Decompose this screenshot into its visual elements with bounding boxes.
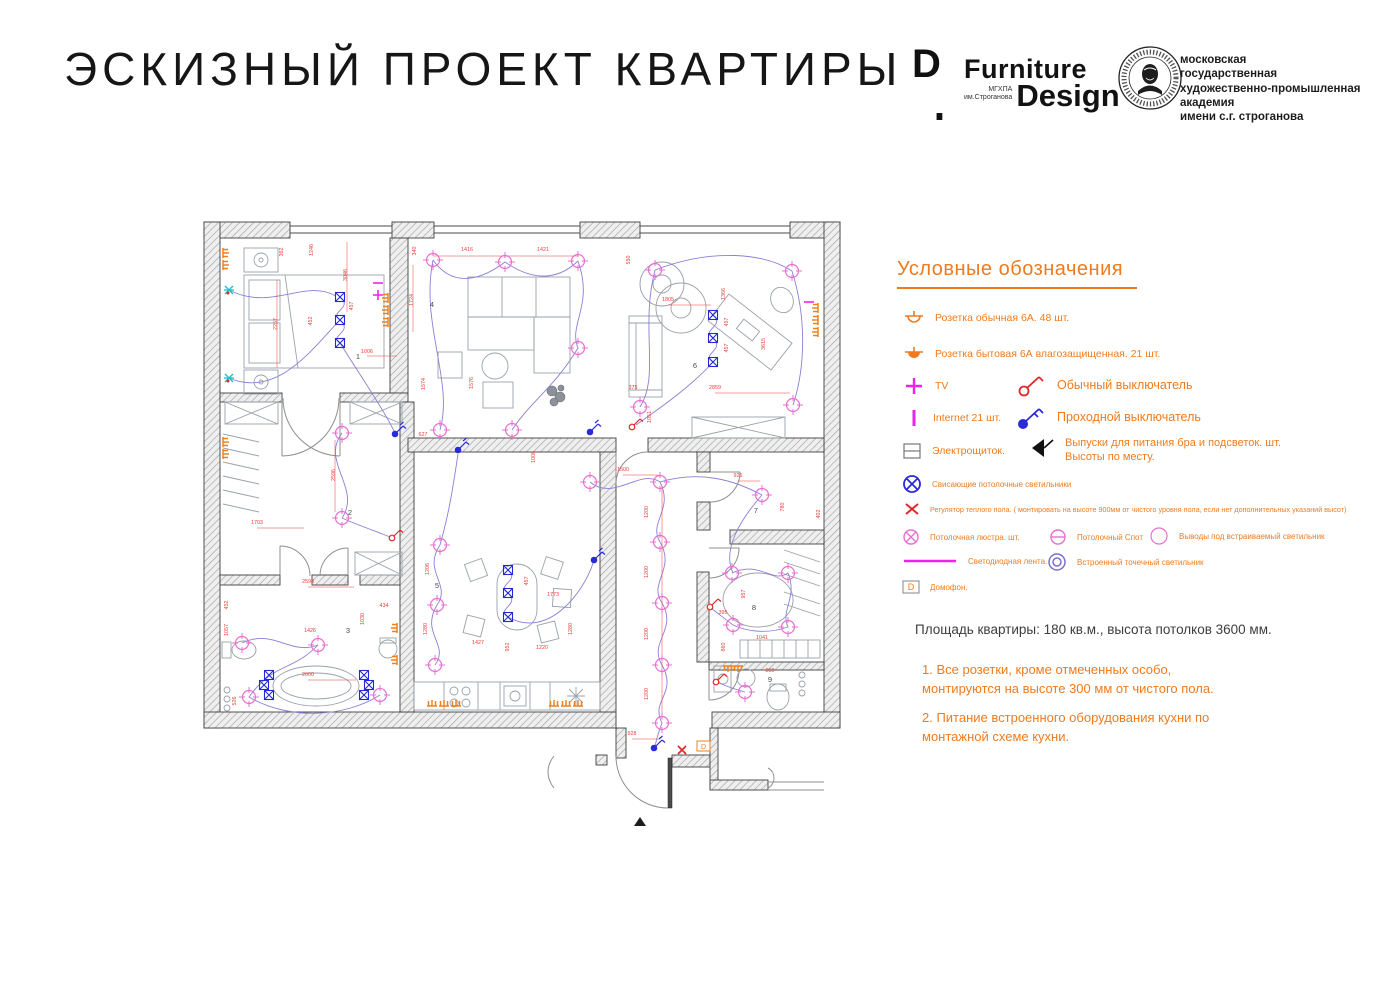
legend-switch-regular: Обычный выключатель (1017, 372, 1192, 398)
socket (223, 248, 229, 258)
dimension-label: 362 (279, 248, 285, 257)
sconce-outlet (224, 374, 234, 383)
dimension-label: 402 (816, 510, 822, 519)
floor-regulator (678, 746, 686, 754)
dimension-label: 1416 (461, 247, 473, 253)
legend-socket-household: Розетка бытовая 6А влагозащищенная. 21 ш… (903, 346, 1160, 362)
wiring (229, 322, 338, 383)
dimension-label: 1280 (423, 623, 429, 635)
wiring (335, 433, 347, 518)
dimension-label: 926 (734, 473, 743, 479)
socket (439, 700, 449, 706)
wall (204, 222, 220, 728)
wiring (432, 545, 442, 665)
pendant-light (709, 334, 718, 343)
pendant-light (265, 691, 274, 700)
dimension-label: 1703 (251, 520, 263, 526)
wiring (640, 270, 655, 407)
dimension-label: 1427 (472, 640, 484, 646)
room-number: 7 (754, 506, 758, 515)
pendant-light (336, 339, 345, 348)
socket (733, 666, 743, 672)
wall (390, 238, 408, 393)
legend-chandelier: Потолочная люстра. шт. (902, 528, 1020, 546)
pendant-lights-icon (902, 474, 922, 494)
room-number: 8 (752, 603, 756, 612)
socket (382, 305, 388, 315)
dimension-label: 957 (741, 590, 747, 599)
svg-text:D: D (908, 582, 915, 592)
room-number: 2 (348, 508, 352, 517)
dimension-label: 1206 (425, 563, 431, 575)
dimension-label: 1200 (644, 688, 650, 700)
legend-recessed-out: Выводы под встраиваемый светильник (1149, 526, 1325, 546)
wall (697, 572, 709, 662)
socket (549, 700, 559, 706)
logo-letter-f: F (921, 104, 945, 120)
dimension-label: 1280 (568, 623, 574, 635)
wall (730, 530, 824, 544)
legend-sconce: Выпуски для питания бра и подсветок. шт.… (1029, 436, 1281, 464)
academy-name: московская государственная художественно… (1180, 53, 1360, 124)
pendant-light (504, 566, 513, 575)
dimension-label: 1200 (644, 506, 650, 518)
room-number: 4 (430, 300, 434, 309)
wall (220, 575, 280, 585)
room-number: 9 (768, 675, 772, 684)
intercom-icon: D (902, 580, 920, 594)
wall (600, 452, 616, 712)
room-number: 5 (435, 581, 439, 590)
legend-title: Условные обозначения (897, 258, 1385, 281)
wall (392, 222, 434, 238)
dimension-label: 2859 (709, 385, 721, 391)
wall (824, 222, 840, 728)
legend-internet: Internet 21 шт. (905, 408, 1001, 428)
logo-letter-d: D (912, 46, 941, 86)
dimension-label: 780 (780, 503, 786, 512)
logo-line2: Design (1016, 82, 1119, 109)
socket-filled-icon (903, 346, 925, 362)
wall (340, 393, 408, 402)
dimension-label: 434 (380, 603, 389, 609)
dimension-label: 375 (629, 385, 638, 391)
dimension-label: 1200 (644, 566, 650, 578)
wall (710, 728, 718, 788)
svg-text:D: D (701, 744, 706, 751)
dimension-label: 1220 (536, 645, 548, 651)
dimension-label: 1576 (469, 377, 475, 389)
dimension-label: 457 (724, 318, 730, 327)
sconce-outlet (224, 286, 234, 295)
wall (710, 780, 768, 790)
socket-outline-icon (903, 310, 925, 326)
socket (723, 666, 733, 672)
dimension-label: 340 (412, 247, 418, 256)
legend: Условные обозначения Розетка обычная 6А.… (897, 258, 1385, 643)
wiring (342, 518, 390, 537)
dimension-label: 928 (628, 731, 637, 737)
pendant-light (360, 671, 369, 680)
socket (812, 327, 818, 337)
dimension-label: 1366 (721, 288, 727, 300)
dimension-label: 1008 (531, 451, 537, 463)
dimension-label: 1805 (662, 297, 674, 303)
dimension-label: 1200 (644, 628, 650, 640)
wall (312, 575, 348, 585)
wall (648, 438, 824, 452)
socket (223, 260, 229, 270)
socket (391, 623, 397, 633)
pendant-light (336, 293, 345, 302)
logo-subtitle: МГХПАим.Строганова (964, 86, 1012, 102)
recessed-outlet-icon (1149, 526, 1169, 546)
wall (580, 222, 640, 238)
legend-switch-pass: Проходной выключатель (1015, 404, 1201, 430)
pendant-light (336, 316, 345, 325)
note-kitchen: 2. Питание встроенного оборудования кухн… (922, 708, 1240, 746)
pendant-light (365, 681, 374, 690)
wall (408, 438, 616, 452)
socket (391, 655, 397, 665)
room-number: 6 (693, 361, 697, 370)
dimension-label: 2257 (273, 318, 279, 330)
switch-pass-icon (1015, 404, 1047, 430)
socket (382, 317, 388, 327)
legend-underline (897, 287, 1137, 289)
note-sockets: 1. Все розетки, кроме отмеченных особо, … (922, 660, 1240, 698)
pendant-light (504, 589, 513, 598)
legend-panel: Электрощиток. (902, 442, 1005, 460)
room-number: 3 (346, 626, 350, 635)
wall (697, 452, 710, 472)
wall (712, 712, 840, 728)
dimension-label: 2598 (302, 579, 314, 585)
wall (697, 502, 710, 530)
legend-tv: TV (903, 376, 948, 396)
switch-pass (587, 420, 601, 435)
dimension-label: 3046 (343, 269, 349, 281)
dimension-label: 452 (224, 601, 230, 610)
dimension-label: 1006 (361, 349, 373, 355)
dimension-label: 1724 (409, 294, 415, 306)
pendant-light (504, 613, 513, 622)
legend-spot: Потолочный Спот (1049, 528, 1143, 546)
dimension-label: 2600 (302, 672, 314, 678)
entrance-marker (634, 817, 646, 826)
wiring (229, 290, 336, 298)
dimension-label: 1246 (309, 244, 315, 256)
room-number: 1 (356, 352, 360, 361)
switch-regular-icon (1017, 372, 1047, 398)
pendant-light (360, 691, 369, 700)
apartment-summary: Площадь квартиры: 180 кв.м., высота пото… (915, 622, 1272, 637)
socket (561, 700, 571, 706)
legend-floor-regulator: Регулятор теплого пола. ( монтировать на… (904, 502, 1346, 516)
legend-led: Светодиодная лента. (902, 556, 1047, 566)
floor-plan: 3621246304622574571006452259617032598452… (192, 220, 852, 834)
dimension-label: 3615 (761, 338, 767, 350)
dimension-label: 395 (719, 610, 728, 616)
wall (616, 728, 626, 758)
dimension-label: 1574 (421, 378, 427, 390)
led-strip-icon (902, 556, 958, 566)
wall (596, 755, 607, 765)
dimension-label: 1057 (224, 624, 230, 636)
wiring (440, 454, 458, 545)
dimension-label: 457 (524, 577, 530, 586)
spot-icon (1049, 528, 1067, 546)
tv-plus-icon (903, 376, 925, 396)
wiring (660, 477, 762, 495)
dimension-label: 2596 (331, 469, 337, 481)
switch-pass (651, 736, 665, 751)
pendant-light (265, 671, 274, 680)
dimension-label: 457 (724, 344, 730, 353)
socket (451, 700, 461, 706)
wall (672, 755, 710, 767)
dimension-label: 1426 (304, 628, 316, 634)
page-title: ЭСКИЗНЫЙ ПРОЕКТ КВАРТИРЫ (64, 42, 902, 96)
pendant-light (260, 681, 269, 690)
wall (204, 712, 616, 728)
socket (812, 303, 818, 313)
dimension-label: 1030 (360, 613, 366, 625)
dimension-label: 1500 (617, 467, 629, 473)
dimension-label: 526 (232, 697, 238, 706)
socket (223, 449, 229, 459)
internet-bar-icon (905, 408, 923, 428)
dimension-label: 830 (766, 668, 775, 674)
socket (223, 437, 229, 447)
dimension-label: 550 (626, 256, 632, 265)
recessed-light-icon (1047, 552, 1067, 572)
electrical-panel-icon (902, 442, 922, 460)
dimension-label: 457 (349, 302, 355, 311)
socket (812, 315, 818, 325)
socket (427, 700, 437, 706)
legend-domofon: D Домофон. (902, 580, 968, 594)
sconce-outlet-icon (1029, 436, 1055, 460)
legend-socket-regular: Розетка обычная 6А. 48 шт. (903, 310, 1069, 326)
wiring (337, 297, 395, 433)
dimension-label: 1773 (547, 592, 559, 598)
dimension-label: 1421 (537, 247, 549, 253)
legend-recessed-point: Встроенный точечный светильник (1047, 552, 1204, 572)
wiring (430, 260, 443, 430)
floor-regulator-icon (904, 502, 920, 516)
dimension-label: 1041 (756, 635, 768, 641)
pendant-light (709, 358, 718, 367)
tv-outlet (373, 290, 383, 300)
stroganov-academy-seal-icon (1116, 44, 1184, 112)
furniture-design-wordmark: Furniture МГХПАим.Строганова Design (964, 56, 1120, 109)
dimension-label: 860 (721, 643, 727, 652)
legend-hanging: Свисающие потолочные светильники (902, 474, 1071, 494)
pendant-light (709, 311, 718, 320)
chandelier-icon (902, 528, 920, 546)
dimension-label: 1051 (647, 411, 653, 423)
furniture-design-logo-icon: D F (912, 46, 958, 120)
dimension-label: 952 (505, 643, 511, 652)
wiring (655, 255, 803, 405)
dimension-label: 452 (308, 317, 314, 326)
dimension-label: 627 (419, 432, 428, 438)
